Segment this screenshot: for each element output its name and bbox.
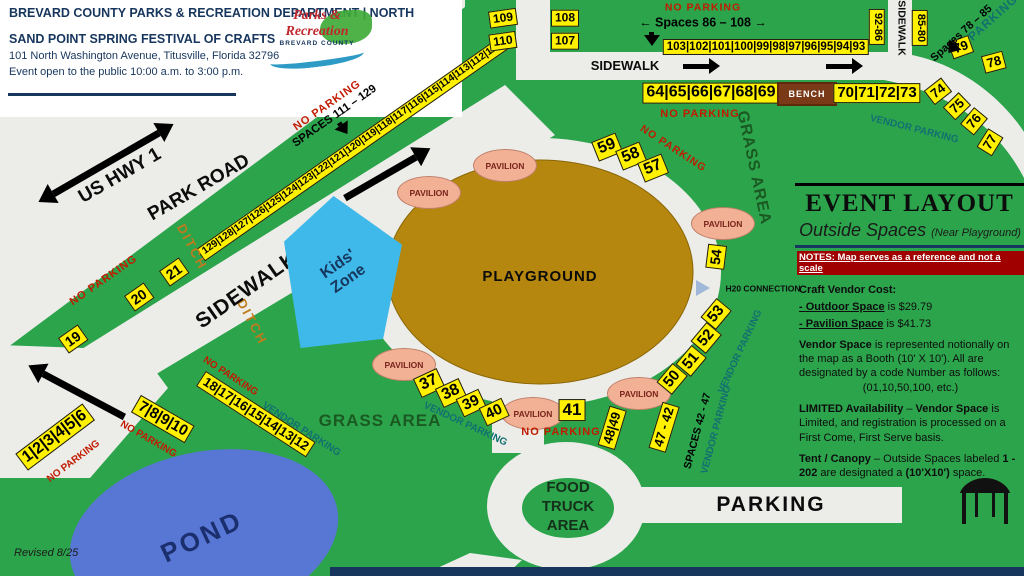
logo-line3: BREVARD COUNTY: [262, 40, 372, 47]
tent-size-bold: (10'X10'): [905, 467, 949, 479]
parking-band-label: PARKING: [716, 494, 825, 516]
outdoor-cost-line: - Outdoor Space is $29.79: [799, 300, 1022, 314]
strip-64-69: 64|65|66|67|68|69: [642, 83, 779, 104]
food-label-2: TRUCK: [542, 498, 595, 517]
pavilion-label: PAVILION: [704, 219, 743, 229]
vendor-space-codes: (01,10,50,100, etc.): [799, 381, 1022, 395]
pavilion-cost: is $41.73: [883, 318, 931, 330]
vendor-space-paragraph: Vendor Space is represented notionally o…: [799, 338, 1022, 395]
limited-vendor-bold: Vendor Space: [916, 403, 989, 415]
playground-label: PLAYGROUND: [482, 269, 597, 285]
limited-dash: –: [903, 403, 915, 415]
panel-title: EVENT LAYOUT: [795, 190, 1024, 218]
sidewalk-vertical-label: SIDEWALK: [895, 0, 906, 55]
pavilion-5: PAVILION: [501, 397, 565, 430]
right-arrow-icon-2: [826, 58, 863, 74]
space-badge-41: 41: [559, 399, 586, 421]
pavilion-label: PAVILION: [514, 409, 553, 419]
h2o-marker-icon: [696, 280, 710, 296]
outdoor-label: Outdoor Space: [806, 301, 885, 313]
bench-label: BENCH: [788, 89, 825, 99]
logo-line1: Parks &: [262, 8, 372, 24]
pavilion-dash: -: [799, 318, 806, 330]
pavilion-label: PAVILION: [620, 389, 659, 399]
cost-header: Craft Vendor Cost:: [799, 283, 1022, 297]
header-divider: [8, 93, 236, 96]
no-parking-64-69: NO PARKING: [660, 109, 739, 121]
event-address: 101 North Washington Avenue, Titusville,…: [9, 50, 279, 62]
logo-wave-swoosh: [269, 43, 364, 72]
no-parking-41: NO PARKING: [521, 427, 600, 439]
header-panel: BREVARD COUNTY PARKS & RECREATION DEPART…: [0, 0, 462, 117]
tent-canopy-icon: [958, 476, 1012, 526]
pavilion-label: PAVILION: [385, 360, 424, 370]
h2o-connection-label: H20 CONNECTION: [725, 285, 800, 294]
pavilion-cost-label: Pavilion Space: [806, 318, 884, 330]
limited-availability-paragraph: LIMITED Availability – Vendor Space is L…: [799, 402, 1022, 445]
panel-subtitle-note: (Near Playground): [931, 227, 1021, 239]
down-arrow-small-icon: [644, 32, 660, 46]
pavilion-label: PAVILION: [486, 161, 525, 171]
spaces-86-108-label: ← Spaces 86 – 108 →: [639, 16, 767, 29]
vendor-space-bold: Vendor Space: [799, 339, 872, 351]
outdoor-dash: -: [799, 301, 806, 313]
tent-text-3: space.: [950, 467, 985, 479]
panel-navy-rule: [795, 245, 1024, 248]
no-parking-north: NO PARKING: [665, 2, 741, 13]
logo-line2: Recreation: [262, 24, 372, 40]
strip-92-86: 92-86: [869, 9, 885, 45]
bench-marker: BENCH: [777, 82, 837, 106]
panel-top-rule: [795, 183, 1024, 186]
parks-rec-logo: Parks & Recreation BREVARD COUNTY: [262, 8, 372, 88]
info-panel: EVENT LAYOUT Outside Spaces (Near Playgr…: [795, 183, 1024, 481]
pavilion-2: PAVILION: [473, 149, 537, 182]
tent-text-1: – Outside Spaces labeled: [871, 453, 1002, 465]
tent-bold: Tent / Canopy: [799, 453, 871, 465]
panel-notes-banner: NOTES: Map serves as a reference and not…: [797, 251, 1024, 275]
revised-date: Revised 8/25: [14, 547, 78, 559]
event-layout-map: BREVARD COUNTY PARKS & RECREATION DEPART…: [0, 0, 1024, 576]
tent-text-2: are designated a: [817, 467, 905, 479]
food-label-1: FOOD: [542, 479, 595, 498]
food-label-3: AREA: [542, 516, 595, 535]
pavilion-cost-line: - Pavilion Space is $41.73: [799, 317, 1022, 331]
pavilion-label: PAVILION: [410, 188, 449, 198]
cost-header-text: Craft Vendor Cost:: [799, 284, 896, 296]
right-arrow-icon-1: [683, 58, 720, 74]
space-badge-107: 107: [551, 33, 579, 50]
pavilion-1: PAVILION: [397, 176, 461, 209]
event-hours: Event open to the public 10:00 a.m. to 3…: [9, 66, 243, 78]
strip-85-80: 85-80: [912, 10, 928, 46]
space-badge-108: 108: [551, 10, 579, 27]
limited-bold: LIMITED Availability: [799, 403, 903, 415]
event-title: SAND POINT SPRING FESTIVAL OF CRAFTS: [9, 32, 275, 46]
food-truck-area-label: FOOD TRUCK AREA: [542, 479, 595, 535]
grass-area-south-label: GRASS AREA: [319, 412, 442, 430]
panel-subtitle-text: Outside Spaces: [799, 220, 926, 240]
panel-subtitle: Outside Spaces (Near Playground): [799, 220, 1024, 241]
strip-70-73: 70|71|72|73: [833, 83, 920, 103]
tent-canopy-paragraph: Tent / Canopy – Outside Spaces labeled 1…: [799, 452, 1022, 481]
sidewalk-top-label: SIDEWALK: [591, 59, 660, 73]
space-badge-54: 54: [705, 244, 726, 270]
strip-103-93: 103|102|101|100|99|98|97|96|95|94|93: [663, 39, 869, 55]
pavilion-3: PAVILION: [691, 207, 755, 240]
bottom-navy-bar: [330, 567, 1024, 576]
outdoor-cost: is $29.79: [885, 301, 933, 313]
